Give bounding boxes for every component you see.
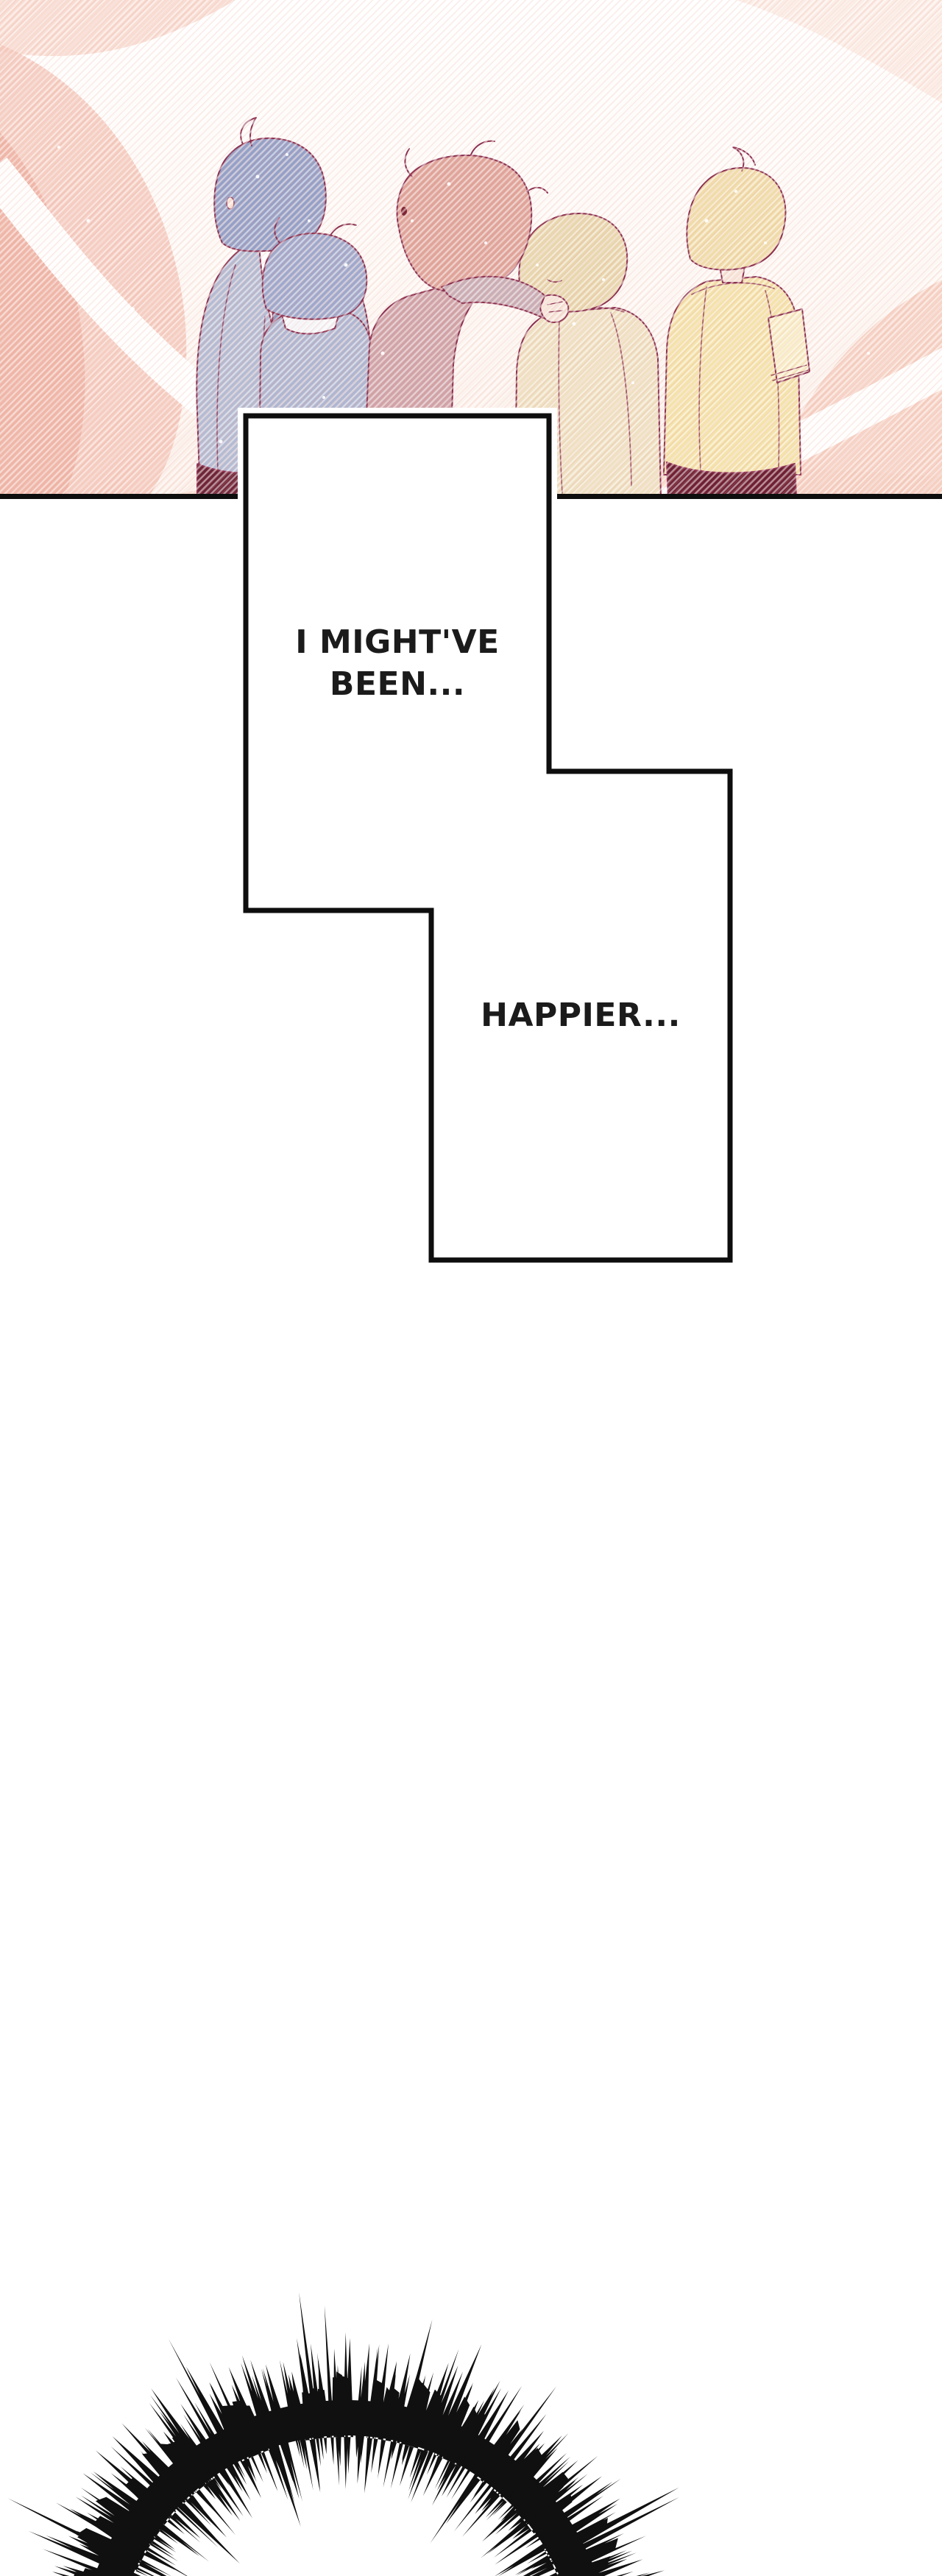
burst-spikes: [0, 2293, 679, 2576]
caption-text-2: HAPPIER...: [431, 771, 730, 1260]
burst-effect-group: [0, 2293, 679, 2576]
burst-band: [98, 2418, 593, 2576]
comic-page: I MIGHT'VE BEEN... HAPPIER...: [0, 0, 942, 2576]
